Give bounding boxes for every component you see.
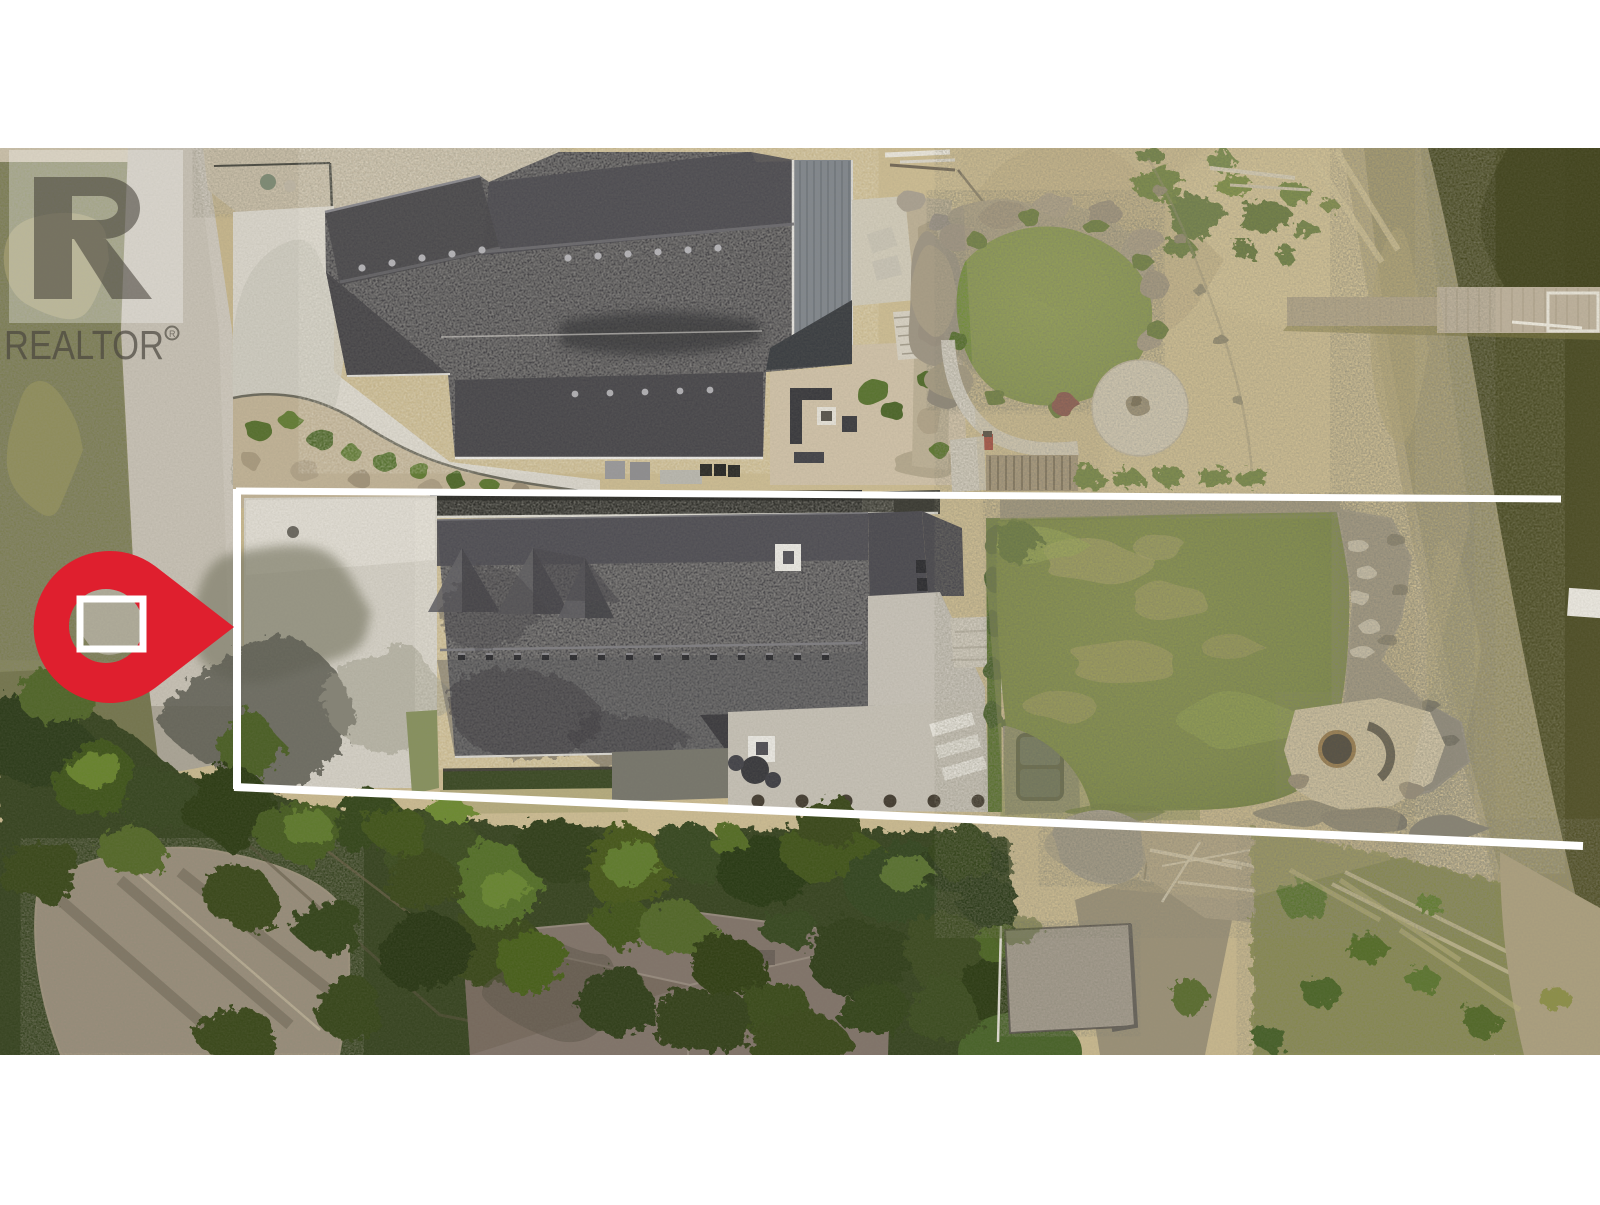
svg-text:REALTOR: REALTOR bbox=[4, 322, 164, 368]
svg-text:R: R bbox=[169, 329, 176, 339]
